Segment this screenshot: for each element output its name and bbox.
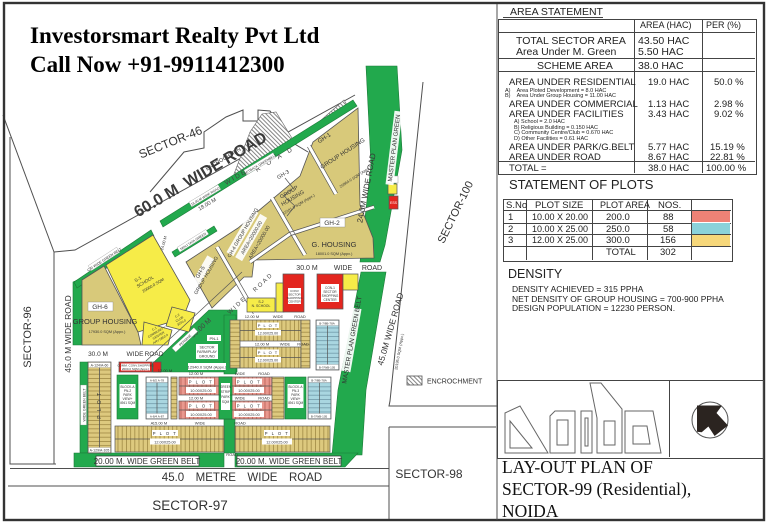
svg-text:ROAD: ROAD	[297, 342, 309, 347]
svg-text:12.00 M: 12.00 M	[255, 342, 269, 347]
svg-text:ESS: ESS	[390, 201, 398, 205]
svg-text:ROAD: ROAD	[252, 272, 275, 294]
svg-text:WIDE: WIDE	[235, 396, 246, 401]
svg-text:P L O T: P L O T	[258, 350, 279, 355]
svg-text:ROAD: ROAD	[294, 314, 306, 319]
svg-text:10.00X25.00: 10.00X25.00	[238, 389, 260, 393]
svg-text:WIDE: WIDE	[127, 351, 145, 358]
svg-text:B-7/WB-105: B-7/WB-105	[319, 366, 336, 370]
svg-text:GH-3: GH-3	[276, 169, 290, 181]
svg-text:SECTOR-46: SECTOR-46	[137, 123, 205, 161]
svg-text:17930.0 SQM (Appx.): 17930.0 SQM (Appx.)	[89, 330, 126, 334]
svg-text:MOLI TATA GREEN: MOLI TATA GREEN	[180, 232, 208, 252]
svg-text:SECTOR-96: SECTOR-96	[22, 306, 34, 368]
svg-text:12940.0 SQM (Appx.): 12940.0 SQM (Appx.)	[188, 365, 227, 370]
svg-text:ROAD: ROAD	[226, 452, 238, 457]
svg-text:2000.0 SQM (Appx.): 2000.0 SQM (Appx.)	[122, 367, 149, 371]
svg-text:ROAD: ROAD	[145, 351, 164, 358]
svg-text:A-129/A-105: A-129/A-105	[90, 449, 110, 453]
svg-text:G. HOUSING: G. HOUSING	[311, 240, 356, 249]
svg-text:12.00X25.00: 12.00X25.00	[154, 441, 176, 445]
svg-text:A-8/2 A-78: A-8/2 A-78	[150, 379, 165, 383]
svg-text:P L O T: P L O T	[189, 404, 214, 409]
svg-text:GROUP HOUSING: GROUP HOUSING	[73, 317, 138, 326]
svg-text:12.00X25.00: 12.00X25.00	[258, 332, 278, 336]
svg-text:GH-6: GH-6	[92, 304, 108, 311]
svg-text:WIDE: WIDE	[280, 342, 291, 347]
svg-text:GH-2: GH-2	[324, 220, 340, 227]
svg-text:12.00X25.00: 12.00X25.00	[266, 441, 288, 445]
svg-text:10.00X25.00: 10.00X25.00	[190, 413, 212, 417]
svg-text:45.0 M WIDE ROAD: 45.0 M WIDE ROAD	[63, 295, 73, 372]
svg-text:10.00X25.00: 10.00X25.00	[238, 413, 260, 417]
svg-text:12.00 M: 12.00 M	[245, 314, 259, 319]
svg-text:N. SCHOOL: N. SCHOOL	[252, 304, 271, 308]
svg-text:12.00 M: 12.00 M	[189, 371, 203, 376]
svg-text:WIDE GREEN BELT: WIDE GREEN BELT	[83, 388, 87, 422]
svg-text:GROUND: GROUND	[199, 355, 215, 359]
svg-text:WIDE: WIDE	[235, 371, 246, 376]
svg-text:CENTER: CENTER	[323, 298, 337, 302]
svg-text:P L O T: P L O T	[97, 391, 103, 418]
svg-text:15.00 M: 15.00 M	[153, 421, 167, 426]
svg-text:B-7/8B-78A: B-7/8B-78A	[319, 322, 335, 326]
svg-text:SECTOR-97: SECTOR-97	[152, 498, 228, 513]
svg-text:20.00 M. WIDE GREEN BELT: 20.00 M. WIDE GREEN BELT	[236, 457, 343, 466]
svg-text:30.0 M: 30.0 M	[88, 351, 108, 358]
svg-text:WIDE: WIDE	[195, 421, 206, 426]
svg-text:SECTOR-98: SECTOR-98	[395, 467, 462, 481]
svg-text:ROAD: ROAD	[362, 265, 382, 272]
svg-text:20195.0 SQM (Appx.): 20195.0 SQM (Appx.)	[394, 333, 404, 371]
svg-text:45.0 METRE WIDE ROAD: 45.0 METRE WIDE ROAD	[162, 472, 322, 484]
svg-text:A: A	[151, 421, 154, 426]
svg-text:P L O T: P L O T	[189, 380, 214, 385]
svg-text:P L O T: P L O T	[237, 404, 262, 409]
svg-text:WIDE: WIDE	[227, 295, 248, 316]
svg-text:12.00 M: 12.00 M	[189, 396, 203, 401]
svg-text:GREEN: GREEN	[220, 385, 232, 389]
svg-text:STRIP: STRIP	[221, 390, 230, 394]
svg-text:SQM: SQM	[222, 400, 230, 404]
svg-text:30.0 M: 30.0 M	[296, 265, 318, 272]
svg-text:SECTOR-100: SECTOR-100	[436, 179, 476, 245]
svg-text:CENTER: CENTER	[288, 300, 301, 304]
svg-text:ROAD: ROAD	[234, 421, 246, 426]
svg-text:WIDE: WIDE	[334, 265, 353, 272]
svg-text:PN-1: PN-1	[209, 336, 219, 341]
svg-text:ROAD: ROAD	[258, 396, 270, 401]
svg-text:ENCROCHMENT: ENCROCHMENT	[427, 379, 483, 386]
svg-text:4941 SQM: 4941 SQM	[288, 401, 304, 405]
svg-text:A-124/A-60: A-124/A-60	[91, 364, 109, 368]
svg-text:P L O T: P L O T	[258, 323, 279, 328]
svg-text:WIDE: WIDE	[273, 314, 284, 319]
svg-text:B-7/8B-78A: B-7/8B-78A	[311, 379, 327, 383]
svg-text:FARM/PLAY: FARM/PLAY	[197, 350, 218, 354]
svg-text:P L O T: P L O T	[237, 380, 262, 385]
svg-text:4941 SQM: 4941 SQM	[120, 401, 136, 405]
svg-text:12.00X25.00: 12.00X25.00	[258, 359, 278, 363]
svg-text:12.00 M: 12.00 M	[158, 368, 172, 373]
svg-text:SECTOR: SECTOR	[200, 346, 215, 350]
svg-text:P L O T: P L O T	[153, 431, 178, 436]
svg-text:20.00 M. WIDE GREEN BELT: 20.00 M. WIDE GREEN BELT	[94, 457, 201, 466]
svg-text:ROAD: ROAD	[258, 371, 270, 376]
svg-text:A-8/4 A-87: A-8/4 A-87	[150, 415, 165, 419]
svg-text:10.00X25.00: 10.00X25.00	[190, 389, 212, 393]
svg-text:24.00 M: 24.00 M	[159, 236, 168, 251]
svg-text:18001.0 SQM (Appx.): 18001.0 SQM (Appx.)	[316, 252, 353, 256]
svg-text:PARK: PARK	[221, 395, 230, 399]
svg-text:P L O T: P L O T	[265, 431, 290, 436]
svg-text:B-7/WB-105: B-7/WB-105	[311, 415, 328, 419]
